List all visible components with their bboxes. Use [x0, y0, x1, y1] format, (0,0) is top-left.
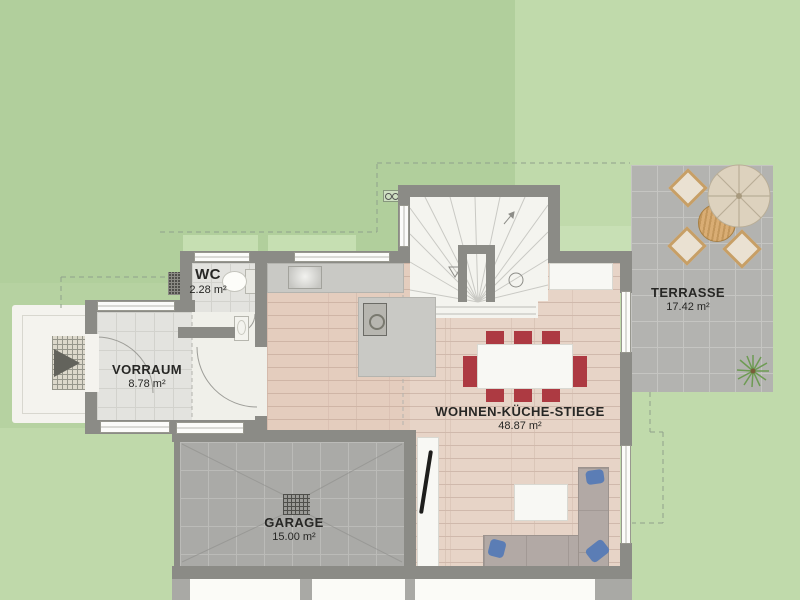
wall: [398, 185, 560, 197]
dining-chair: [573, 356, 587, 387]
dining-chair: [486, 388, 504, 402]
lightwell-2: [312, 579, 405, 600]
wall: [404, 430, 416, 570]
lightwell-3: [415, 579, 595, 600]
cooktop-icon: [363, 303, 387, 336]
wall: [172, 566, 632, 579]
stair-core-wall: [458, 245, 467, 302]
wall: [174, 434, 180, 566]
room-area: 17.42 m²: [651, 301, 725, 313]
room-label-wohnen: WOHNEN-KÜCHE-STIEGE 48.87 m²: [435, 404, 604, 432]
dining-table: [477, 344, 573, 389]
room-label-garage: GARAGE 15.00 m²: [264, 515, 323, 543]
room-label-vorraum: VORRAUM 8.78 m²: [112, 362, 182, 390]
sideboard: [549, 263, 613, 290]
kitchen-sink-icon: [288, 266, 322, 289]
wall: [620, 263, 632, 293]
dining-chair: [542, 331, 560, 345]
dining-chair: [514, 388, 532, 402]
room-area: 48.87 m²: [435, 420, 604, 432]
garage-drain-icon: [283, 494, 310, 515]
room-label-wc: WC 2.28 m²: [189, 266, 226, 296]
dining-chair: [486, 331, 504, 345]
room-area: 2.28 m²: [189, 284, 226, 296]
lightwell-1: [190, 579, 300, 600]
dining-chair: [463, 356, 477, 387]
floor-plan: WC 2.28 m² VORRAUM 8.78 m² WOHNEN-KÜCHE-…: [0, 0, 800, 600]
window-hall-bottom: [176, 422, 244, 434]
room-name: TERRASSE: [651, 285, 725, 300]
wall: [620, 352, 632, 446]
lawn-pocket: [552, 226, 632, 253]
wall: [548, 251, 632, 263]
wall: [178, 327, 235, 338]
room-name: WC: [189, 266, 226, 283]
entrance-arrow-icon: [54, 349, 80, 377]
terrace-table-icon: [698, 204, 736, 242]
room-area: 8.78 m²: [112, 378, 182, 390]
stair-core-wall: [486, 245, 495, 302]
window-stairs: [399, 205, 409, 247]
room-label-terrasse: TERRASSE 17.42 m²: [651, 285, 725, 313]
room-area: 15.00 m²: [264, 531, 323, 543]
room-name: WOHNEN-KÜCHE-STIEGE: [435, 404, 604, 419]
room-name: VORRAUM: [112, 362, 182, 377]
terrace-floor: [631, 165, 773, 392]
sofa-cushion: [585, 469, 605, 485]
room-name: GARAGE: [264, 515, 323, 530]
window-wc: [194, 252, 250, 262]
entrance-door: [85, 334, 99, 392]
dining-chair: [514, 331, 532, 345]
coffee-table: [514, 484, 568, 521]
wall: [255, 263, 267, 347]
window-vorraum-top: [97, 301, 175, 311]
window-kitchen: [294, 252, 390, 262]
window-vorraum-bottom: [100, 421, 170, 433]
window-living: [621, 445, 631, 544]
stair-bottom-steps: [420, 301, 538, 318]
lawn-patch-light-bottomleft: [0, 428, 180, 600]
dining-chair: [542, 388, 560, 402]
wc-sink-icon: [234, 316, 249, 341]
terrace-door: [621, 291, 631, 353]
